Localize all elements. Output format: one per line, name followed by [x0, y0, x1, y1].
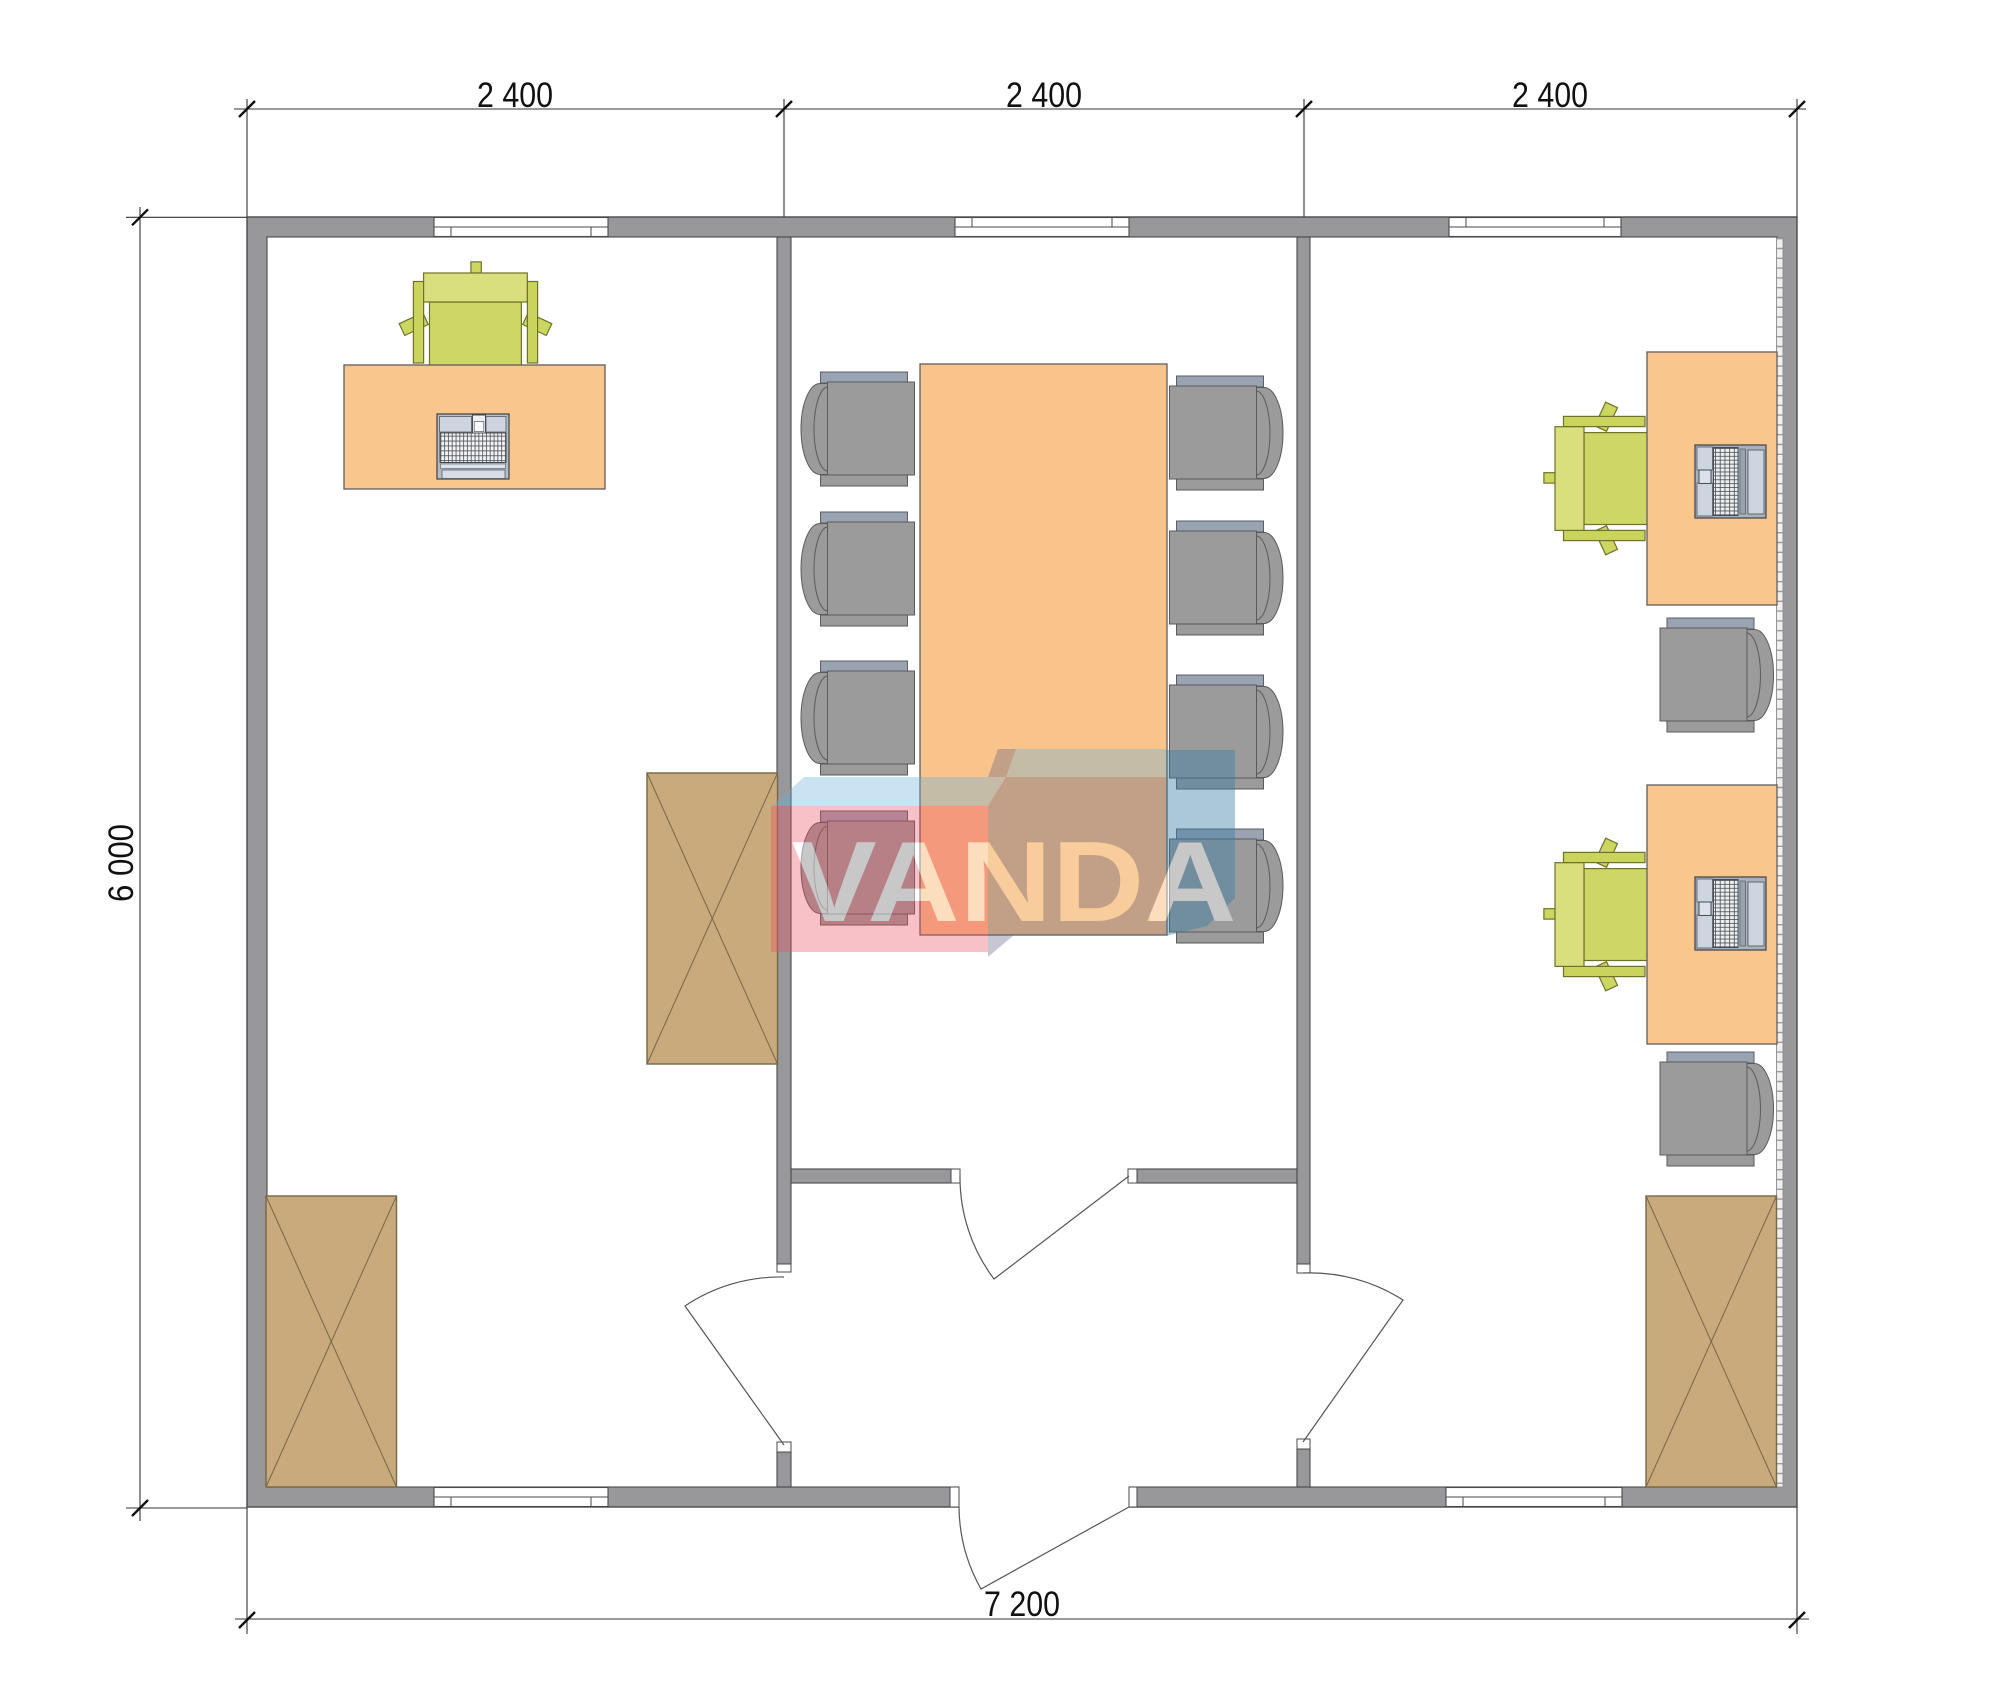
svg-text:7 200: 7 200 — [984, 1585, 1060, 1624]
svg-text:2 400: 2 400 — [1006, 76, 1082, 115]
svg-text:2 400: 2 400 — [1512, 76, 1588, 115]
svg-text:6 000: 6 000 — [102, 824, 141, 902]
svg-text:2 400: 2 400 — [477, 76, 553, 115]
